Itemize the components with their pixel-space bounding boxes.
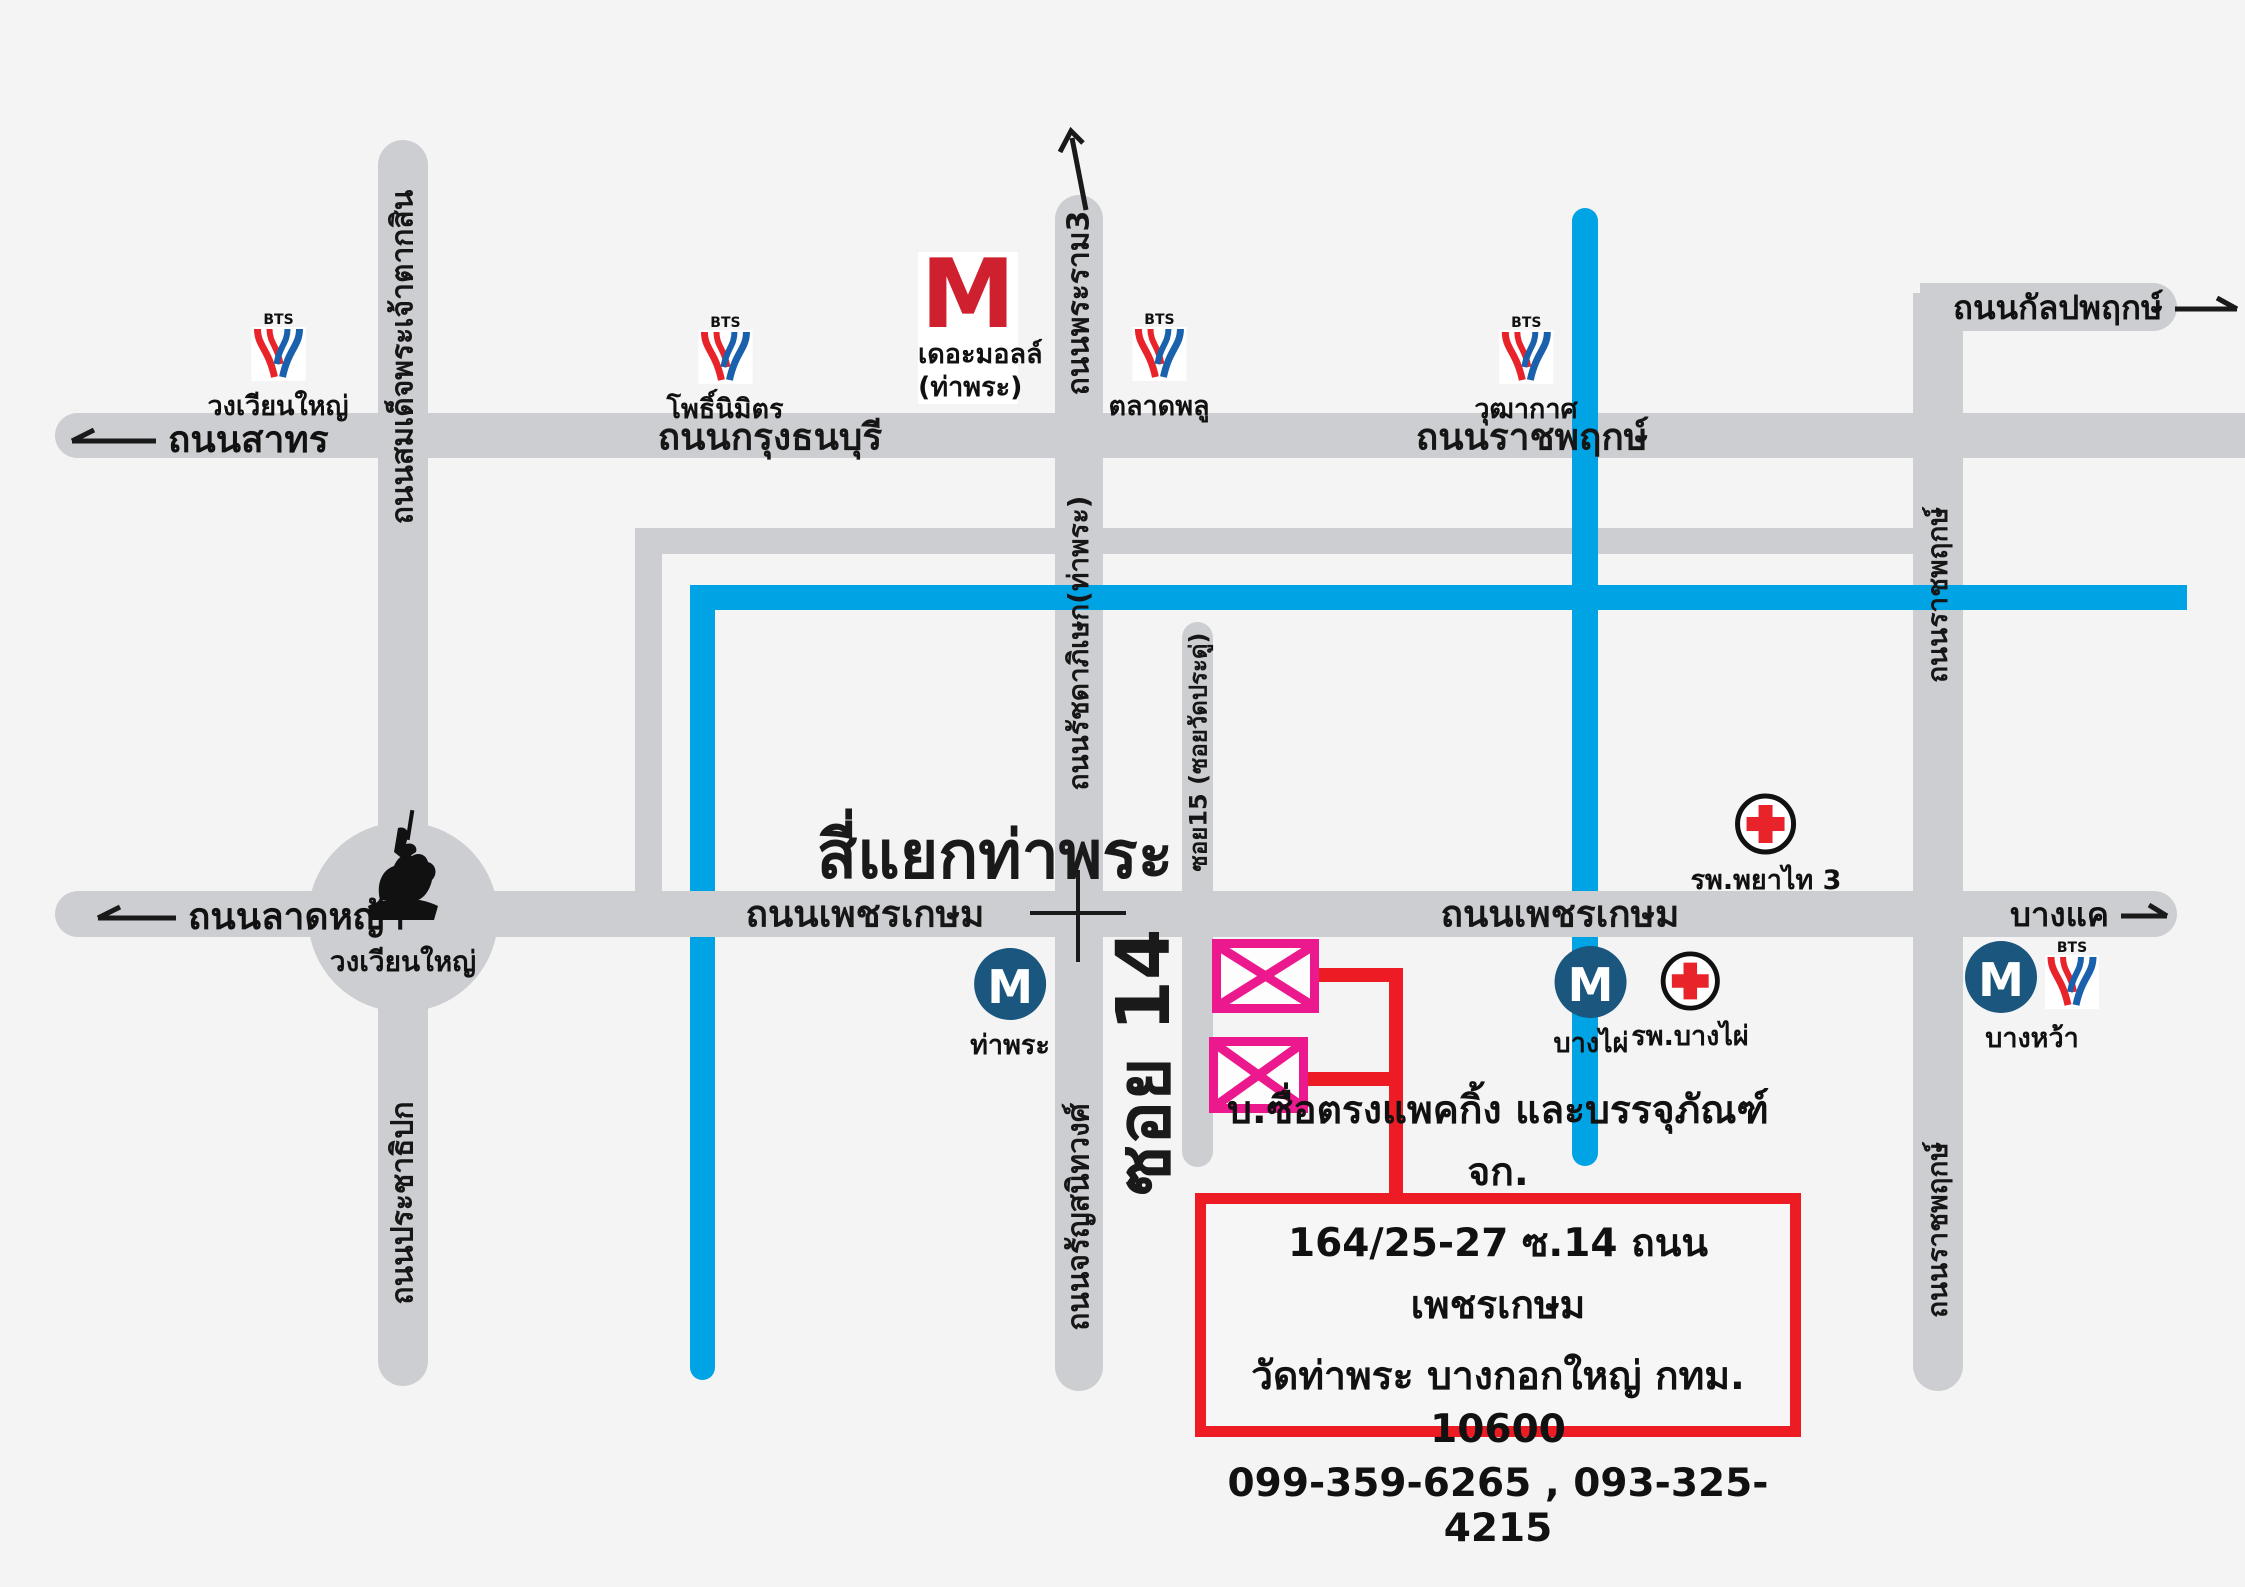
road-label-ratchaphruek-south-lower: ถนนราชพฤกษ์	[1916, 1142, 1960, 1318]
mrt-station-tha-phra: M ท่าพระ	[970, 947, 1050, 1066]
bts-logo-icon: BTS	[697, 315, 753, 385]
mrt-bts-station-bang-wa: M BTS บางหว้า	[1964, 940, 2100, 1059]
road-connector-vertical	[635, 528, 662, 913]
right-arrow-icon	[2119, 900, 2177, 928]
hospital-bang-phai: รพ.บางไผ่	[1631, 950, 1748, 1057]
mrt-station-label: บางหว้า	[1985, 1016, 2079, 1059]
company-name: บ.ซื่อตรงแพคกิ้ง และบรรจุภัณฑ์ จก.	[1206, 1079, 1790, 1203]
svg-text:M: M	[987, 960, 1033, 1014]
road-label-phetkasem-east: ถนนเพชรเกษม	[1441, 885, 1680, 944]
map-canvas: ถนนสาทร ถนนกรุงธนบุรี ถนนราชพฤกษ์ ถนนกัล…	[0, 0, 2245, 1587]
bts-logo-icon: BTS	[250, 312, 306, 382]
hospital-cross-icon	[1659, 950, 1721, 1012]
the-mall-landmark: M เดอะมอลล์ (ท่าพระ)	[918, 252, 1018, 404]
hospital-phayathai3: รพ.พยาไท 3	[1691, 792, 1842, 901]
blue-line-vertical-west	[690, 585, 715, 1380]
bangkhae-label-row: บางแค	[2010, 895, 2177, 933]
bts-logo-icon: BTS	[2044, 940, 2100, 1010]
svg-text:BTS: BTS	[710, 315, 740, 331]
road-label-taksin: ถนนสมเด็จพระเจ้าตากสิน	[380, 190, 427, 525]
company-info-box: บ.ซื่อตรงแพคกิ้ง และบรรจุภัณฑ์ จก. 164/2…	[1195, 1193, 1801, 1437]
left-arrow-icon	[62, 425, 158, 453]
road-label-soi14: ซอย 14	[1084, 929, 1202, 1196]
road-label-ratchadaphisek: ถนนรัชดาภิเษก(ท่าพระ)	[1057, 496, 1101, 791]
building-marker-upper	[1212, 939, 1319, 1013]
kanlapaphruek-label-row: ถนนกัลปพฤกษ์	[1953, 288, 2245, 326]
bts-station-pho-nimit: BTS โพธิ์นิมิตร	[666, 315, 783, 430]
bts-logo-icon: BTS	[1131, 312, 1187, 382]
mall-branch: (ท่าพระ)	[918, 372, 1018, 404]
svg-text:BTS: BTS	[2057, 940, 2087, 956]
hospital-label: รพ.บางไผ่	[1631, 1014, 1748, 1057]
mrt-station-label: ท่าพระ	[970, 1023, 1050, 1066]
bts-station-label: วงเวียนใหญ่	[208, 384, 349, 427]
svg-text:BTS: BTS	[1511, 315, 1541, 331]
taksin-monument-icon	[348, 808, 458, 928]
bts-station-wutthakat: BTS วุฒากาศ	[1474, 315, 1577, 430]
bts-station-label: ตลาดพลู	[1108, 384, 1209, 427]
svg-text:M: M	[1978, 953, 2024, 1007]
road-label-soi15: ซอย15 (ซอยวัดประดู่)	[1179, 633, 1218, 872]
svg-text:BTS: BTS	[1144, 312, 1174, 328]
bts-station-label: วุฒากาศ	[1474, 387, 1577, 430]
bts-station-wongwian-yai: BTS วงเวียนใหญ่	[208, 312, 349, 427]
right-arrow-icon	[2173, 293, 2245, 321]
up-arrow-icon	[1052, 122, 1096, 214]
svg-text:BTS: BTS	[263, 312, 293, 328]
mrt-logo-icon: M	[1554, 945, 1628, 1019]
mrt-station-label: บางไผ่	[1554, 1021, 1629, 1064]
mrt-logo-icon: M	[973, 947, 1047, 1021]
junction-title: สี่แยกท่าพระ	[817, 803, 1173, 908]
x-mark-icon	[1221, 948, 1310, 1004]
road-label-phra-ram3: ถนนพระราม3	[1056, 211, 1103, 396]
road-label-ratchaphruek-south-upper: ถนนราชพฤกษ์	[1916, 507, 1960, 683]
bts-station-label: โพธิ์นิมิตร	[666, 387, 783, 430]
left-arrow-icon	[88, 902, 178, 930]
mrt-station-bang-phai: M บางไผ่	[1554, 945, 1629, 1064]
company-address-line1: 164/25-27 ซ.14 ถนนเพชรเกษม	[1206, 1212, 1790, 1336]
road-label-bangkhae: บางแค	[2010, 888, 2109, 941]
road-label-kanlapaphruek: ถนนกัลปพฤกษ์	[1953, 281, 2163, 334]
roundabout-label: วงเวียนใหญ่	[330, 940, 476, 984]
company-phone-numbers: 099-359-6265 , 093-325-4215	[1206, 1461, 1790, 1551]
mall-name: เดอะมอลล์	[918, 339, 1018, 371]
mall-m-logo: M	[918, 252, 1018, 339]
bts-station-talat-phlu: BTS ตลาดพลู	[1108, 312, 1209, 427]
bts-logo-icon: BTS	[1498, 315, 1554, 385]
company-address-line2: วัดท่าพระ บางกอกใหญ่ กทม. 10600	[1206, 1345, 1790, 1452]
road-secondary-horizontal	[635, 528, 1938, 554]
svg-text:M: M	[1568, 958, 1614, 1012]
road-label-prachathipok: ถนนประชาธิปก	[380, 1101, 427, 1304]
hospital-label: รพ.พยาไท 3	[1691, 858, 1842, 901]
mrt-logo-icon: M	[1964, 940, 2038, 1014]
intersection-cross-horizontal	[1030, 911, 1126, 915]
blue-line-horizontal	[690, 585, 2187, 610]
hospital-cross-icon	[1734, 792, 1798, 856]
